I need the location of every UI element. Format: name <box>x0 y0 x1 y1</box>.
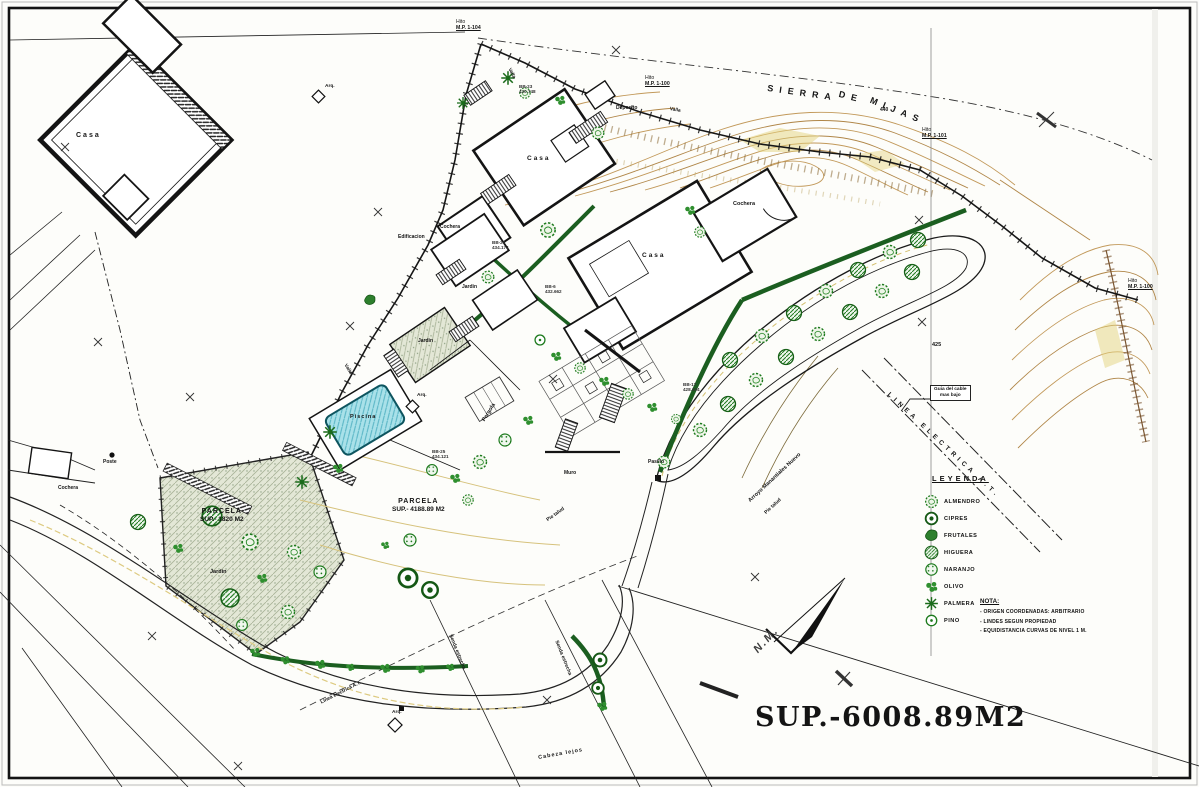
property-fence <box>302 44 1138 711</box>
north-arrow <box>766 578 845 653</box>
site-plan-page: SIERRA DE MIJAS SUP.-6008.89M2 Casa Casa… <box>0 0 1199 787</box>
garden-parcel <box>160 442 356 654</box>
site-plan-drawing <box>0 0 1199 787</box>
pergola-structure <box>465 377 514 422</box>
swimming-pool <box>309 370 421 470</box>
neighbour-house <box>8 0 254 483</box>
contour-lines-right <box>1000 180 1158 448</box>
